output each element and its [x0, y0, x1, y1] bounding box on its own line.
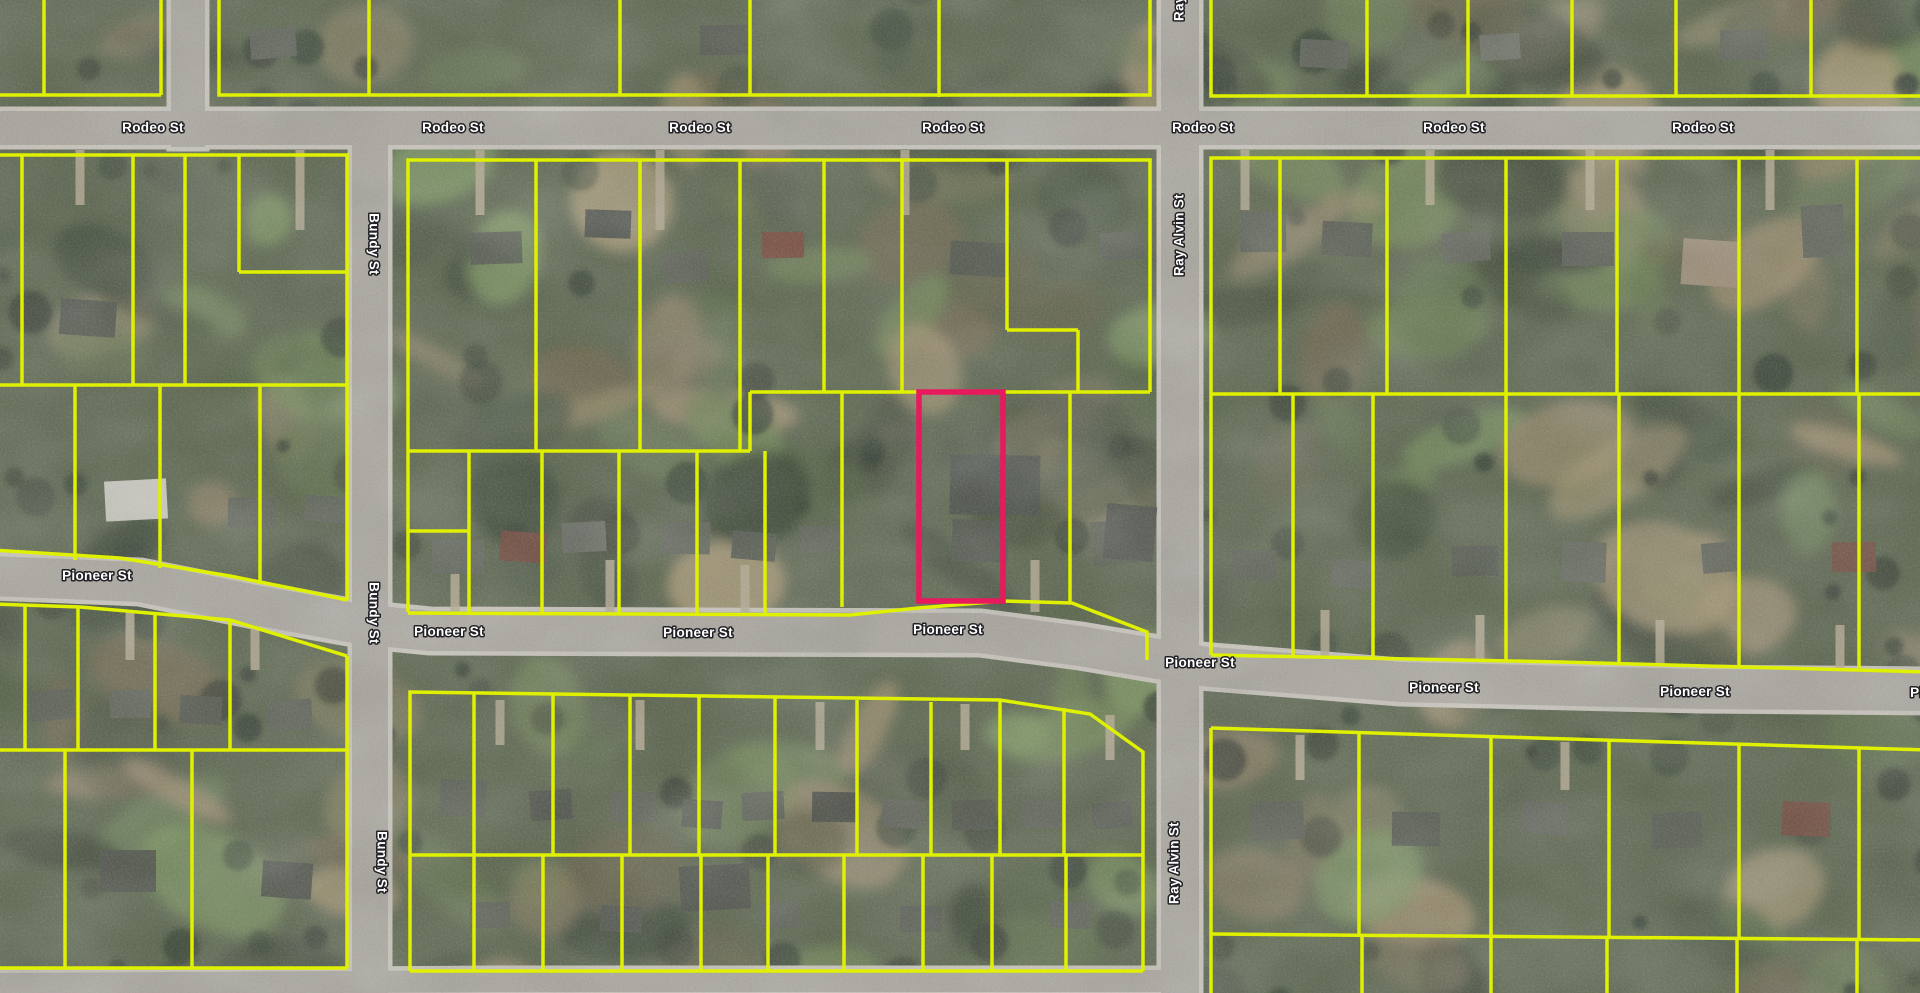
street-label: Ray Alvin St [1167, 822, 1182, 904]
imagery-texture [0, 0, 1920, 993]
street-label: Rodeo St [1172, 120, 1234, 135]
street-label: Pioneer St [913, 622, 983, 637]
street-label: Pioneer St [1910, 685, 1920, 700]
street-label: Rodeo St [1423, 120, 1485, 135]
street-label: Pioneer St [414, 624, 484, 639]
street-label: Rodeo St [922, 120, 984, 135]
street-label: Bundy St [375, 831, 390, 893]
street-label: Rodeo St [1672, 120, 1734, 135]
map-viewport[interactable]: Rodeo StRodeo StRodeo StRodeo StRodeo St… [0, 0, 1920, 993]
street-label: Pioneer St [1660, 684, 1730, 699]
street-label: Rodeo St [422, 120, 484, 135]
street-label: Rodeo St [669, 120, 731, 135]
street-label: Rodeo St [122, 120, 184, 135]
street-label: Pioneer St [1165, 655, 1235, 670]
street-label: Pioneer St [62, 568, 132, 583]
street-label: Ray Alvin St [1172, 0, 1187, 21]
street-label: Bundy St [367, 213, 382, 275]
street-label: Ray Alvin St [1172, 194, 1187, 276]
street-label: Pioneer St [663, 625, 733, 640]
street-label: Bundy St [367, 582, 382, 644]
street-label: Pioneer St [1409, 680, 1479, 695]
satellite-map-canvas[interactable]: Rodeo StRodeo StRodeo StRodeo StRodeo St… [0, 0, 1920, 993]
